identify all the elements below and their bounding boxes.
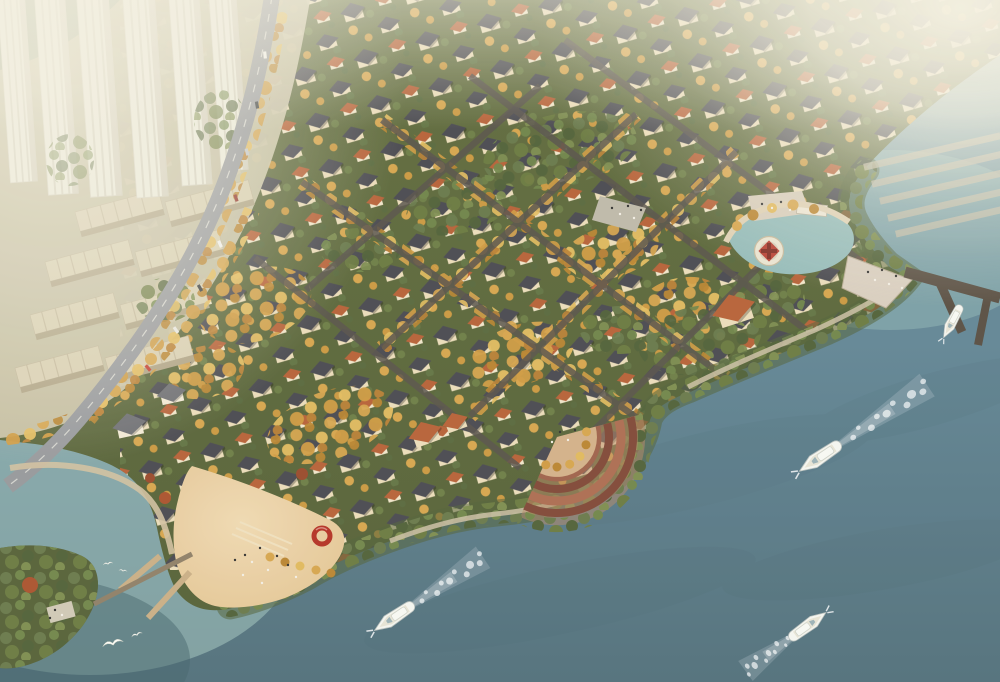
aerial-rendering-canvas: [0, 0, 1000, 682]
scene-svg: [0, 0, 1000, 682]
atmospheric-haze: [0, 0, 1000, 682]
